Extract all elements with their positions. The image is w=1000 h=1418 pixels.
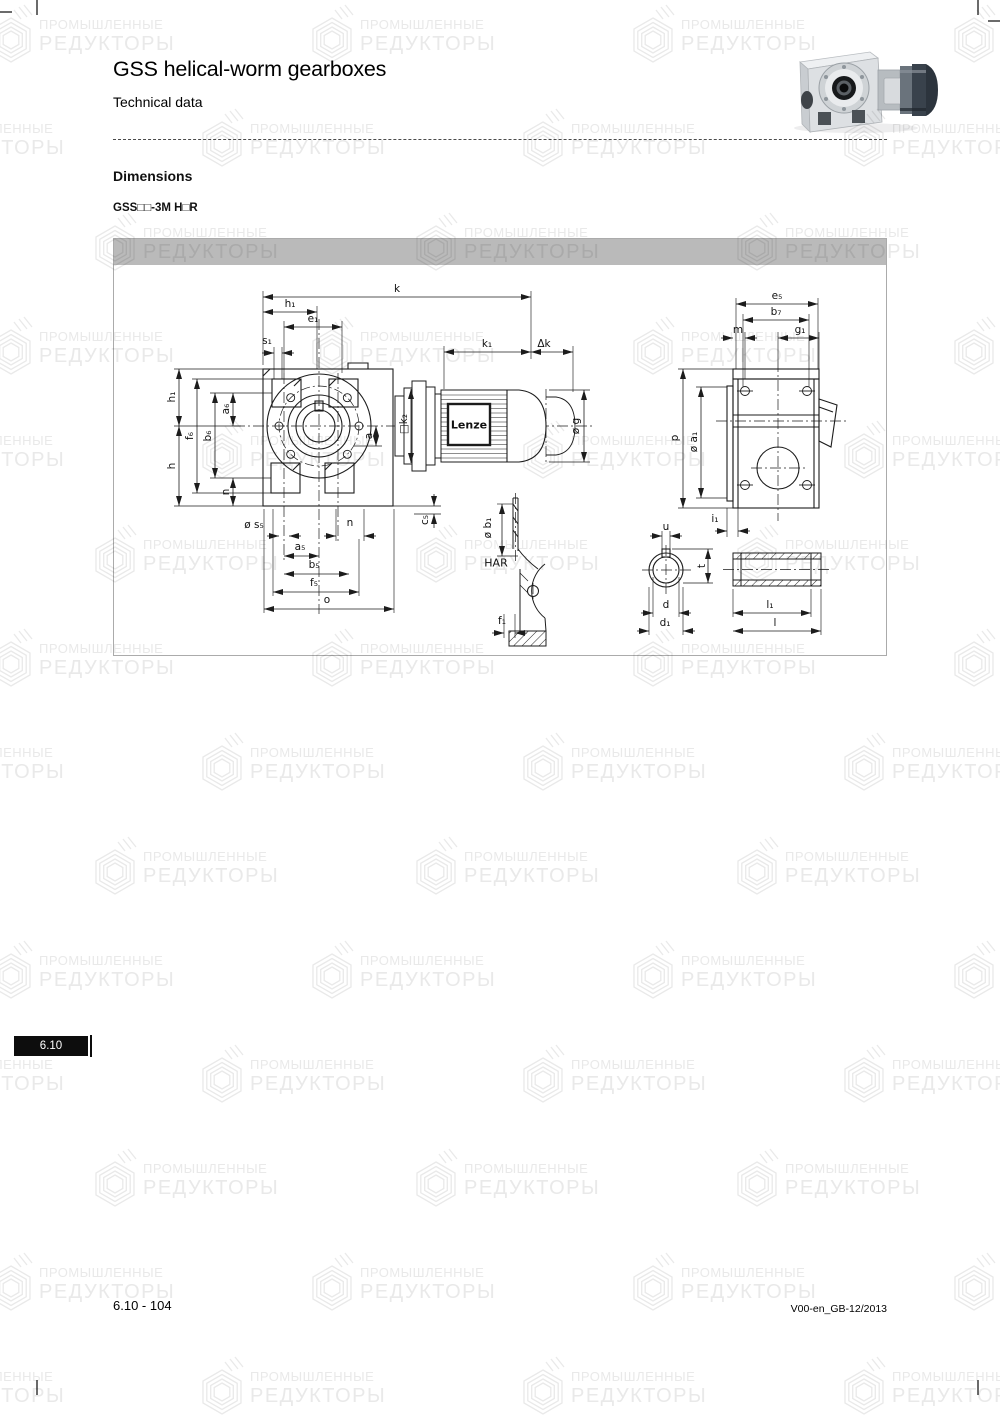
dim-label: m [733,325,743,336]
watermark: ПРОМЫШЛЕННЫЕРЕДУКТОРЫ [309,1252,496,1314]
watermark: ПРОМЫШЛЕННЫЕРЕДУКТОРЫ [734,1148,921,1210]
dim-label: t [697,564,708,568]
watermark-hex-icon [951,4,997,66]
dim-label: l₁ [766,600,773,611]
footer-page-number: 6.10 - 104 [113,1298,172,1313]
watermark: ПРОМЫШЛЕННЫЕРЕДУКТОРЫ [309,940,496,1002]
dim-label: l [774,618,777,629]
dim-label: b₆ [203,431,214,442]
model-code: GSS□□-3M H□R [113,202,198,214]
dim-label: h [167,463,178,470]
dim-label: n [347,518,354,529]
dim-label: Lenze [451,420,487,431]
dim-label: ø s₅ [244,520,263,531]
watermark-hex-icon [520,732,566,794]
watermark: ПРОМЫШЛЕННЫЕРЕДУКТОРЫ [630,1252,817,1314]
dim-label: b₅ [309,560,320,571]
crop-mark [36,1380,38,1395]
drawing-panel: kh₁e₁s₁k₁Δke₅b₇mg₁h₁f₆b₆a₆hna□k₂ø gc₅ø s… [113,238,887,656]
dim-label: o [324,595,330,606]
watermark: ПРОМЫШЛЕННЫЕРЕДУКТОРЫ [0,732,65,794]
dim-label: Δk [537,339,550,350]
dim-label: ø a₁ [689,432,700,452]
watermark: ПРОМЫШЛЕННЫЕРЕДУКТОРЫ [413,836,600,898]
watermark-hex-icon [309,940,355,1002]
watermark-hex-icon [951,316,997,378]
watermark: ПРОМЫШЛЕННЫЕРЕДУКТОРЫ [841,1044,1000,1106]
watermark-hex-icon [951,940,997,1002]
dim-label: c₅ [420,515,431,525]
dashed-divider [113,139,887,140]
watermark-hex-icon [0,4,34,66]
dim-label: h₁ [285,299,296,310]
crop-mark [0,11,12,13]
page-title: GSS helical-worm gearboxes [113,57,386,82]
watermark-hex-icon [841,1356,887,1418]
watermark: ПРОМЫШЛЕННЫЕРЕДУКТОРЫ [199,1356,386,1418]
watermark: ПРОМЫШЛЕННЫЕРЕДУКТОРЫ [951,316,1000,378]
dim-label: p [670,435,681,442]
page-tab-line [90,1035,92,1057]
dim-label: g₁ [795,325,806,336]
gearbox-photo [786,44,948,134]
watermark-hex-icon [630,1252,676,1314]
watermark: ПРОМЫШЛЕННЫЕРЕДУКТОРЫ [734,836,921,898]
watermark-hex-icon [841,1044,887,1106]
watermark: ПРОМЫШЛЕННЫЕРЕДУКТОРЫ [951,1252,1000,1314]
watermark-hex-icon [92,836,138,898]
watermark: ПРОМЫШЛЕННЫЕРЕДУКТОРЫ [951,628,1000,690]
dim-label: b₇ [771,307,782,318]
watermark-hex-icon [520,1356,566,1418]
watermark-hex-icon [0,1252,34,1314]
watermark-hex-icon [413,1148,459,1210]
dim-label: d [663,600,670,611]
dim-label: □k₂ [399,414,410,434]
dim-label: s₁ [262,336,272,347]
watermark-hex-icon [734,1148,780,1210]
dim-label: f₆ [185,432,196,440]
watermark: ПРОМЫШЛЕННЫЕРЕДУКТОРЫ [0,940,175,1002]
dim-label: HAR [484,558,507,569]
page-tab-badge: 6.10 [14,1036,88,1056]
watermark-hex-icon [841,732,887,794]
watermark-hex-icon [309,1252,355,1314]
watermark-hex-icon [92,1148,138,1210]
section-heading: Dimensions [113,168,192,184]
watermark: ПРОМЫШЛЕННЫЕРЕДУКТОРЫ [520,732,707,794]
dim-label: u [663,522,670,533]
watermark-hex-icon [413,836,459,898]
watermark: ПРОМЫШЛЕННЫЕРЕДУКТОРЫ [520,1044,707,1106]
dim-label: h₁ [167,392,178,403]
dim-label: a [364,433,375,439]
dim-label: a₅ [295,542,306,553]
watermark: ПРОМЫШЛЕННЫЕРЕДУКТОРЫ [0,420,65,482]
watermark-hex-icon [199,1356,245,1418]
dimension-labels: kh₁e₁s₁k₁Δke₅b₇mg₁h₁f₆b₆a₆hna□k₂ø gc₅ø s… [114,239,886,655]
watermark-hex-icon [520,1044,566,1106]
watermark-hex-icon [630,940,676,1002]
dim-label: k [394,284,400,295]
watermark: ПРОМЫШЛЕННЫЕРЕДУКТОРЫ [951,940,1000,1002]
crop-mark [977,0,979,15]
crop-mark [36,0,38,15]
watermark: ПРОМЫШЛЕННЫЕРЕДУКТОРЫ [0,1356,65,1418]
watermark: ПРОМЫШЛЕННЫЕРЕДУКТОРЫ [199,1044,386,1106]
dim-label: a₆ [221,404,232,415]
page-subtitle: Technical data [113,94,203,110]
crop-mark [977,1380,979,1395]
watermark: ПРОМЫШЛЕННЫЕРЕДУКТОРЫ [841,732,1000,794]
watermark: ПРОМЫШЛЕННЫЕРЕДУКТОРЫ [92,836,279,898]
watermark: ПРОМЫШЛЕННЫЕРЕДУКТОРЫ [520,1356,707,1418]
footer-version: V00-en_GB-12/2013 [791,1303,887,1315]
watermark-hex-icon [0,316,34,378]
dim-label: e₁ [308,314,319,325]
watermark-hex-icon [951,628,997,690]
dim-label: k₁ [482,339,492,350]
watermark: ПРОМЫШЛЕННЫЕРЕДУКТОРЫ [951,4,1000,66]
watermark-hex-icon [951,1252,997,1314]
dim-label: ø b₁ [483,518,494,539]
watermark-hex-icon [0,628,34,690]
watermark-hex-icon [0,940,34,1002]
dim-label: d₁ [660,618,671,629]
crop-mark [988,20,1000,22]
watermark-hex-icon [630,4,676,66]
dim-label: f₅ [310,578,318,589]
dim-label: e₅ [772,291,783,302]
watermark: ПРОМЫШЛЕННЫЕРЕДУКТОРЫ [199,732,386,794]
watermark-hex-icon [199,732,245,794]
dim-label: n [221,489,232,496]
watermark: ПРОМЫШЛЕННЫЕРЕДУКТОРЫ [413,1148,600,1210]
watermark-hex-icon [199,1044,245,1106]
watermark-hex-icon [734,836,780,898]
watermark: ПРОМЫШЛЕННЫЕРЕДУКТОРЫ [92,1148,279,1210]
dim-label: f₁ [498,616,506,627]
watermark: ПРОМЫШЛЕННЫЕРЕДУКТОРЫ [630,940,817,1002]
dim-label: ø g [571,418,582,434]
dim-label: i₁ [711,514,718,525]
watermark: ПРОМЫШЛЕННЫЕРЕДУКТОРЫ [0,108,65,170]
